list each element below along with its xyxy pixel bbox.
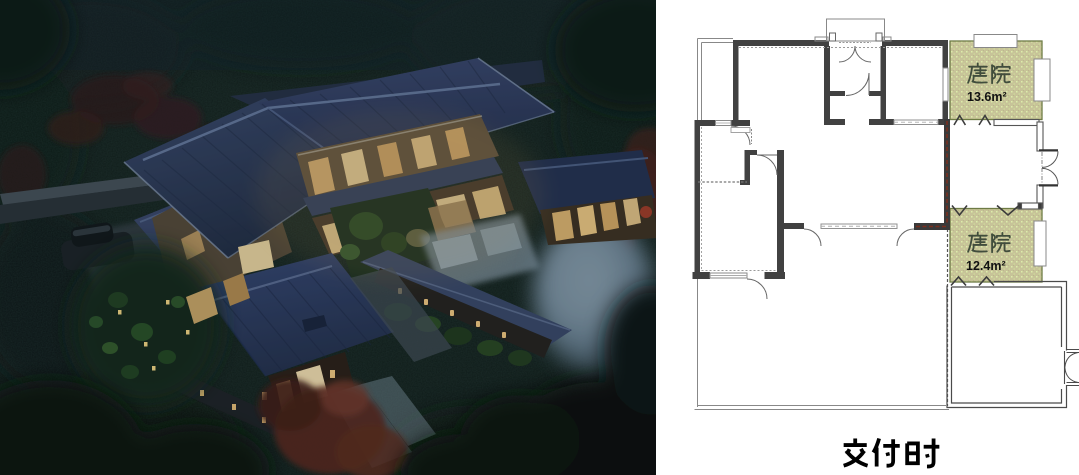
svg-text:12.4m²: 12.4m² [966,259,1006,273]
svg-text:13.6m²: 13.6m² [967,90,1007,104]
